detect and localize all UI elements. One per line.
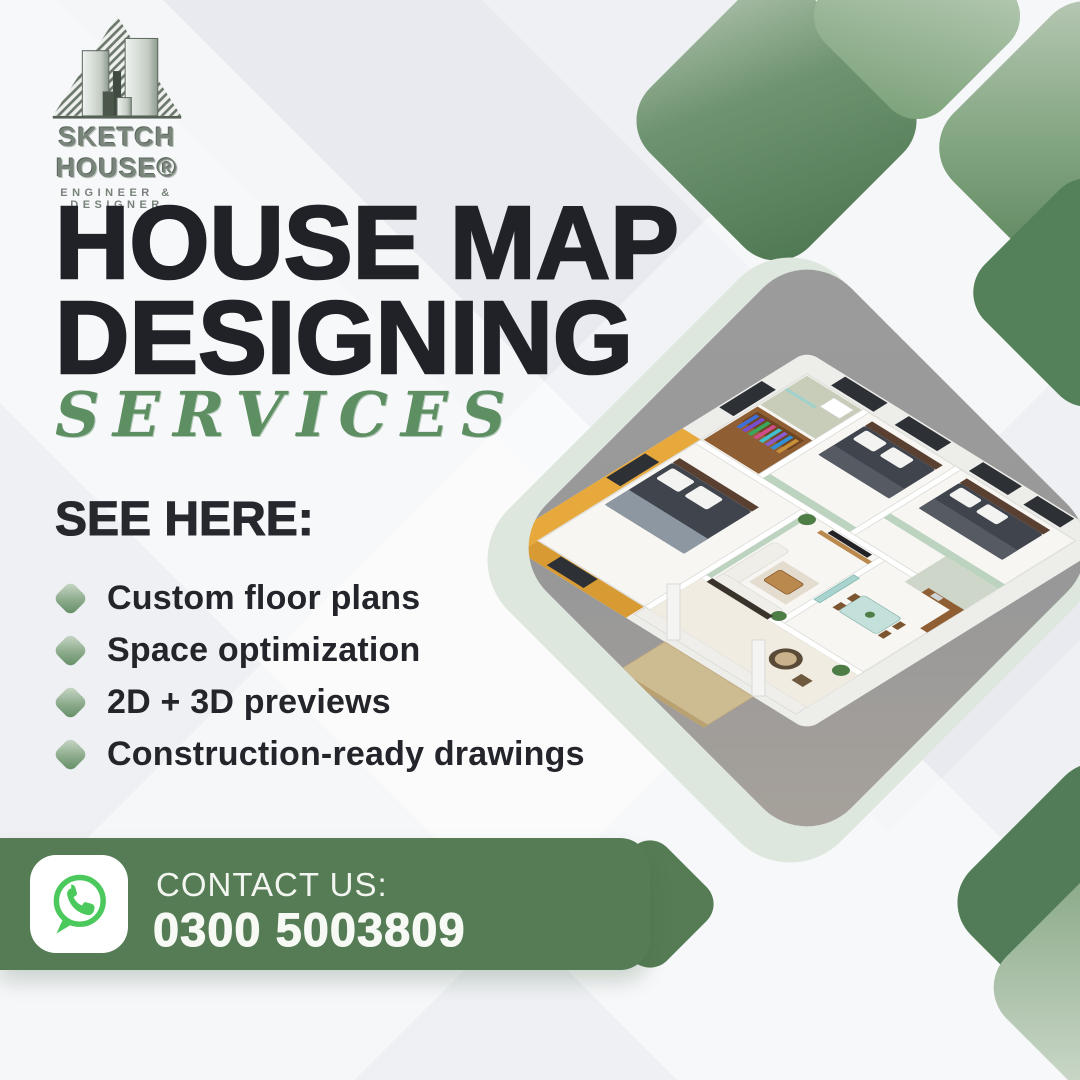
headline: HOUSE MAP DESIGNING SERVICES (55, 196, 679, 451)
diamond-bullet-icon (53, 632, 88, 667)
brand-name: SKETCH HOUSE® (12, 122, 222, 184)
list-item: Construction-ready drawings (58, 728, 585, 780)
contact-bar[interactable]: CONTACT US: 0300 5003809 (0, 838, 650, 970)
list-item-label: Construction-ready drawings (107, 735, 585, 774)
contact-phone[interactable]: 0300 5003809 (153, 902, 466, 957)
list-item: Space optimization (58, 624, 585, 676)
list-heading: SEE HERE: (55, 492, 314, 547)
headline-line-2: DESIGNING (55, 291, 679, 386)
diamond-bullet-icon (53, 736, 88, 771)
list-item: Custom floor plans (58, 572, 585, 624)
list-item: 2D + 3D previews (58, 676, 585, 728)
building-triangle-logo-icon (12, 14, 222, 120)
whatsapp-icon[interactable] (30, 855, 128, 953)
feature-list: Custom floor plans Space optimization 2D… (58, 572, 585, 780)
list-item-label: 2D + 3D previews (107, 683, 391, 722)
diamond-bullet-icon (53, 580, 88, 615)
contact-label: CONTACT US: (156, 866, 388, 904)
diamond-bullet-icon (53, 684, 88, 719)
headline-line-1: HOUSE MAP (55, 196, 679, 291)
list-item-label: Custom floor plans (107, 579, 420, 618)
flyer-canvas: SKETCH HOUSE® ENGINEER & DESIGNER (0, 0, 1080, 1080)
list-item-label: Space optimization (107, 631, 420, 670)
brand-logo: SKETCH HOUSE® ENGINEER & DESIGNER (12, 14, 222, 211)
